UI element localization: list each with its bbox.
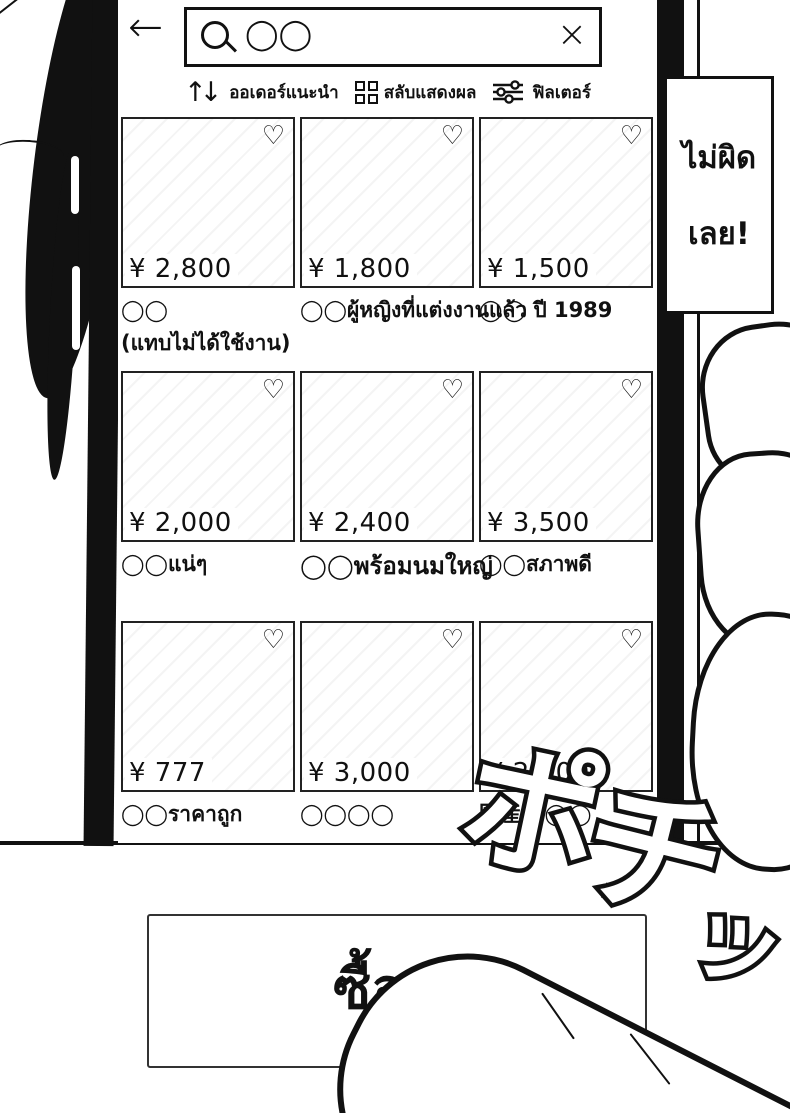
listing-thumbnail[interactable]: ♡ ¥ 2,000 xyxy=(121,371,295,542)
view-toggle-button[interactable]: สลับแสดงผล xyxy=(355,79,477,106)
favorite-heart-icon[interactable]: ♡ xyxy=(262,123,285,149)
sort-label: ออเดอร์แนะนำ xyxy=(229,79,339,106)
favorite-heart-icon[interactable]: ♡ xyxy=(441,123,464,149)
phone-volume-button xyxy=(72,266,80,350)
favorite-heart-icon[interactable]: ♡ xyxy=(620,627,643,653)
listing-price: ¥ 2,800 xyxy=(125,254,238,286)
listing-title: ◯◯แน่ๆ xyxy=(121,548,295,581)
listing-card: ♡ ¥ 1,800 ◯◯ผู้หญิงที่แต่งงานแล้ว xyxy=(300,117,474,327)
clear-search-icon[interactable]: × xyxy=(557,14,587,55)
listing-title: ◯◯ผู้หญิงที่แต่งงานแล้ว xyxy=(300,294,474,327)
filter-label: ฟิลเตอร์ xyxy=(532,79,591,106)
filter-button[interactable]: ฟิลเตอร์ xyxy=(492,79,591,106)
listing-title: ◯◯ ปี 1989 xyxy=(479,294,653,327)
favorite-heart-icon[interactable]: ♡ xyxy=(441,627,464,653)
sort-arrows-icon: ↑↓ xyxy=(184,77,215,108)
listing-price: ¥ 2,400 xyxy=(304,508,417,540)
listing-thumbnail[interactable]: ♡ ¥ 1,800 xyxy=(300,117,474,288)
listing-price: ¥ 1,500 xyxy=(483,254,596,286)
manga-panel-phone-shop: ← ◯◯ × ↑↓ ออเดอร์แนะนำ สลับแสดงผล xyxy=(0,0,790,1113)
results-toolbar: ↑↓ ออเดอร์แนะนำ สลับแสดงผล ฟิลเตอร์ xyxy=(118,70,657,114)
listing-card: ♡ ¥ 2,800 ◯◯ (แทบไม่ได้ใช้งาน) xyxy=(121,117,295,359)
listing-thumbnail[interactable]: ♡ ¥ 2,400 xyxy=(300,371,474,542)
favorite-heart-icon[interactable]: ♡ xyxy=(620,377,643,403)
listing-title: ◯◯สภาพดี xyxy=(479,548,653,581)
listing-card: ♡ ¥ 777 ◯◯ราคาถูก xyxy=(121,621,295,831)
listing-price: ¥ 2,000 xyxy=(125,508,238,540)
search-query-text: ◯◯ xyxy=(245,17,312,52)
speech-bubble: ไม่ผิด เลย! xyxy=(664,76,774,314)
favorite-heart-icon[interactable]: ♡ xyxy=(262,627,285,653)
search-icon xyxy=(201,21,229,49)
listing-price: ¥ 777 xyxy=(125,758,212,790)
listing-thumbnail[interactable]: ♡ ¥ 3,500 xyxy=(479,371,653,542)
listing-thumbnail[interactable]: ♡ ¥ 1,500 xyxy=(479,117,653,288)
listing-price: ¥ 3,000 xyxy=(304,758,417,790)
listing-title: ◯◯ราคาถูก xyxy=(121,798,295,831)
favorite-heart-icon[interactable]: ♡ xyxy=(620,123,643,149)
speech-line: เลย! xyxy=(688,208,750,258)
back-arrow-icon[interactable]: ← xyxy=(128,6,163,48)
sfx-tap-sound: ポ チ ッ xyxy=(432,688,790,1008)
sort-button[interactable]: ↑↓ ออเดอร์แนะนำ xyxy=(184,77,339,108)
listing-card: ♡ ¥ 1,500 ◯◯ ปี 1989 xyxy=(479,117,653,327)
listing-card: ♡ ¥ 2,000 ◯◯แน่ๆ xyxy=(121,371,295,581)
search-input[interactable]: ◯◯ × xyxy=(184,7,602,67)
grid-view-icon xyxy=(355,81,378,104)
speech-line: ไม่ผิด xyxy=(682,132,756,182)
listing-title: ◯◯ (แทบไม่ได้ใช้งาน) xyxy=(121,294,295,359)
listing-price: ¥ 1,800 xyxy=(304,254,417,286)
favorite-heart-icon[interactable]: ♡ xyxy=(441,377,464,403)
listing-card: ♡ ¥ 3,500 ◯◯สภาพดี xyxy=(479,371,653,581)
favorite-heart-icon[interactable]: ♡ xyxy=(262,377,285,403)
view-toggle-label: สลับแสดงผล xyxy=(384,79,477,106)
listing-thumbnail[interactable]: ♡ ¥ 2,800 xyxy=(121,117,295,288)
listing-thumbnail[interactable]: ♡ ¥ 777 xyxy=(121,621,295,792)
listing-price: ¥ 3,500 xyxy=(483,508,596,540)
filter-sliders-icon xyxy=(492,80,526,104)
listing-title: ◯◯พร้อมนมใหญ่ xyxy=(300,548,474,585)
phone-volume-button xyxy=(71,156,79,214)
panel-corner-line xyxy=(0,0,43,15)
listing-card: ♡ ¥ 2,400 ◯◯พร้อมนมใหญ่ xyxy=(300,371,474,585)
